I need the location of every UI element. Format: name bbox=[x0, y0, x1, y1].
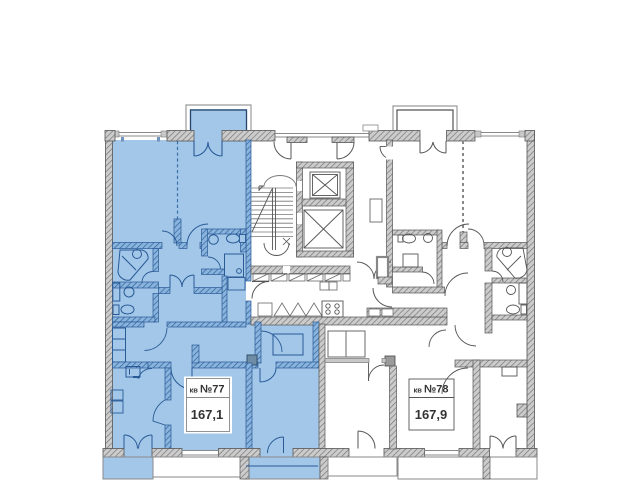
svg-text:167,9: 167,9 bbox=[415, 407, 448, 422]
svg-text:кв №77: кв №77 bbox=[190, 384, 225, 396]
svg-text:167,1: 167,1 bbox=[191, 407, 224, 422]
